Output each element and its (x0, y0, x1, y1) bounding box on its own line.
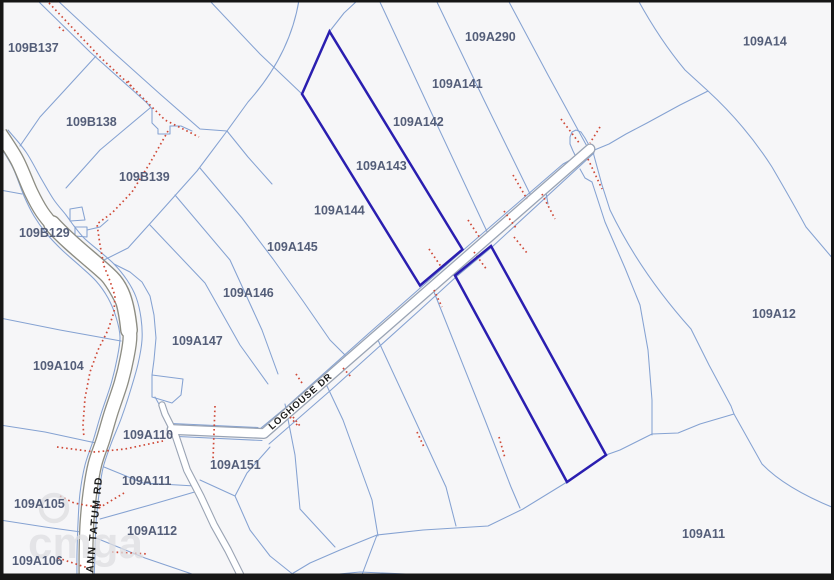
svg-text:109A111: 109A111 (122, 474, 171, 488)
svg-text:109A143: 109A143 (356, 159, 407, 173)
svg-text:109A112: 109A112 (127, 524, 177, 538)
svg-text:109A290: 109A290 (465, 30, 516, 44)
svg-text:109A147: 109A147 (172, 334, 223, 348)
svg-text:109A141: 109A141 (432, 77, 483, 91)
svg-text:109A144: 109A144 (314, 204, 365, 218)
svg-text:109A146: 109A146 (223, 286, 274, 300)
svg-text:109A104: 109A104 (33, 359, 84, 373)
svg-text:109A106: 109A106 (12, 554, 63, 568)
svg-text:109A145: 109A145 (267, 240, 318, 254)
svg-text:109A14: 109A14 (743, 35, 787, 49)
svg-text:109B137: 109B137 (8, 41, 59, 55)
svg-text:109B129: 109B129 (19, 226, 70, 240)
svg-text:109A12: 109A12 (752, 307, 796, 321)
svg-text:109A151: 109A151 (210, 458, 261, 472)
svg-text:109A142: 109A142 (393, 115, 444, 129)
svg-text:109B138: 109B138 (66, 115, 117, 129)
svg-text:109A11: 109A11 (682, 527, 725, 541)
svg-text:109A110: 109A110 (123, 428, 173, 442)
svg-text:109A105: 109A105 (14, 497, 65, 511)
svg-text:109B139: 109B139 (119, 170, 170, 184)
